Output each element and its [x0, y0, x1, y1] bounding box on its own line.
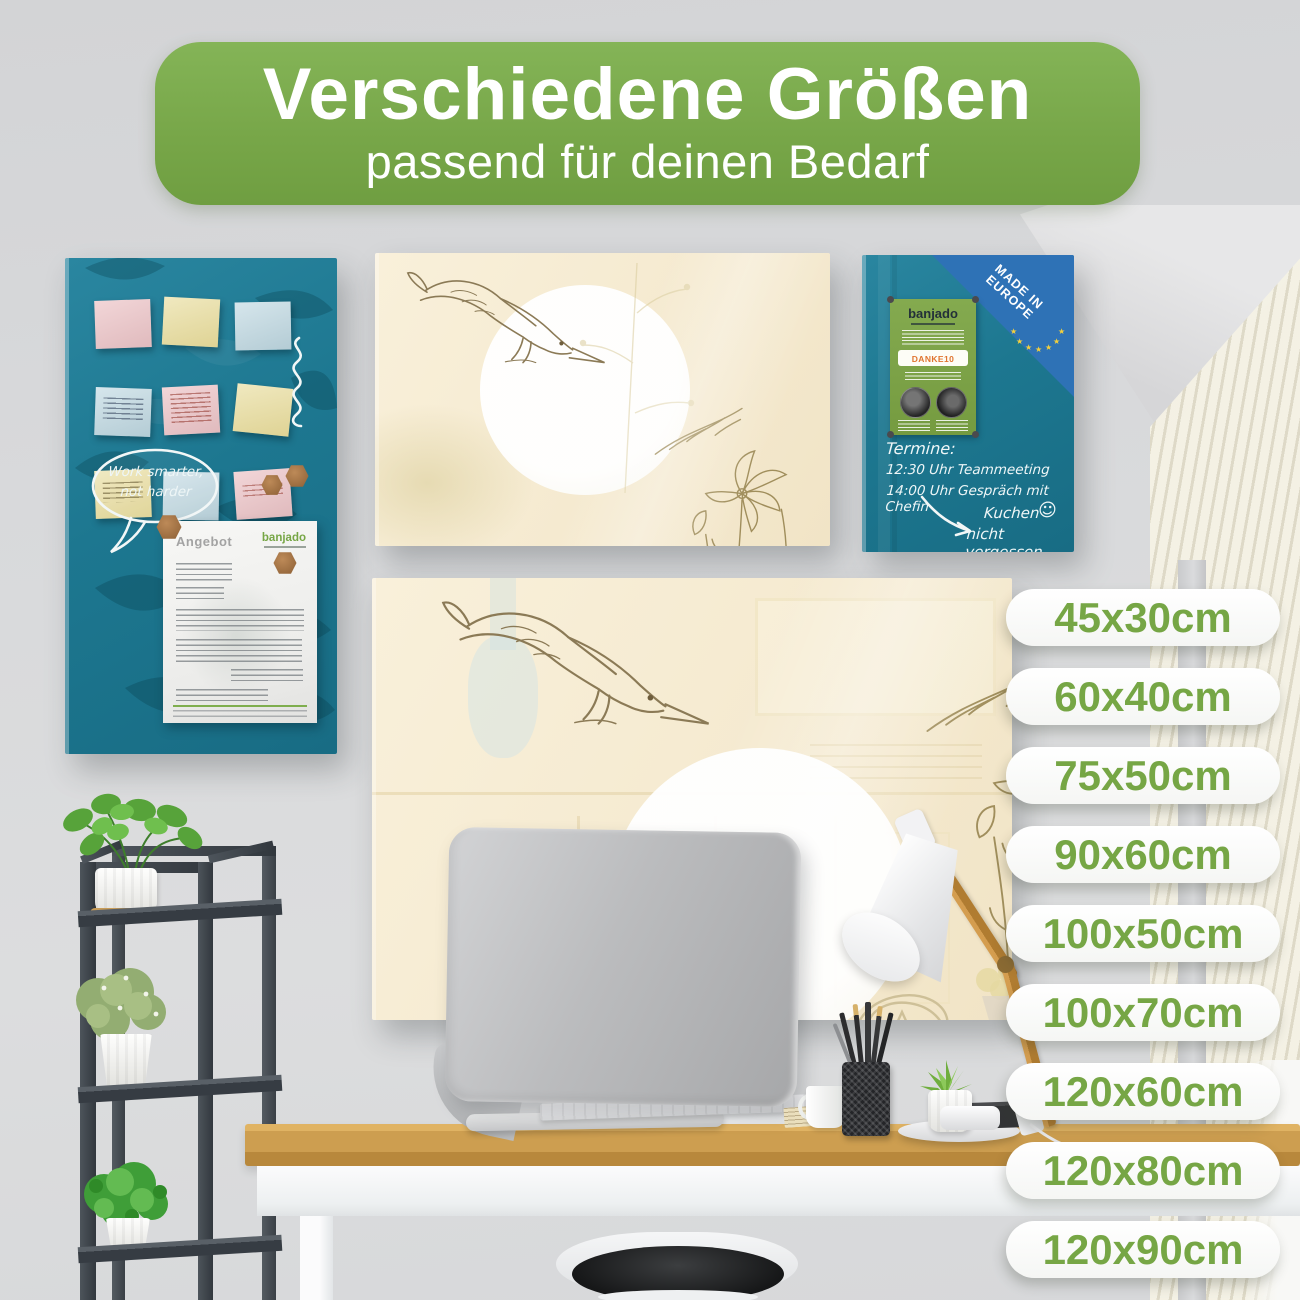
desk-leg	[300, 1216, 333, 1300]
flower-line-art	[647, 399, 830, 546]
pencil	[865, 1002, 871, 1068]
reminder-line2: nicht vergessen	[965, 525, 1074, 552]
bird-line-art	[427, 592, 727, 797]
eu-star-icon: ★	[1016, 337, 1023, 346]
lamp-base-puck	[940, 1106, 1000, 1130]
smiley-icon: ☺	[1037, 500, 1057, 521]
agenda-line1: 12:30 Uhr Teammeeting	[885, 462, 1050, 478]
glass-edge	[862, 255, 866, 552]
flyer: banjado DANKE10	[890, 299, 976, 435]
note-scribble	[170, 392, 212, 426]
flyer-coupon-badge: DANKE10	[898, 350, 968, 366]
document-text-block	[176, 689, 268, 701]
monitor-back	[445, 827, 802, 1107]
sticky-note	[235, 302, 292, 351]
glass-magnet-board-medium-cream	[375, 253, 830, 546]
flyer-magnet	[887, 296, 894, 303]
size-badge-100x50: 100x50cm	[1006, 905, 1280, 962]
sticky-note	[94, 387, 152, 437]
eu-star-icon: ★	[1035, 345, 1042, 354]
flyer-coupon-code: DANKE10	[912, 354, 954, 364]
eu-star-icon: ★	[1025, 343, 1032, 352]
dog-photo	[936, 387, 967, 418]
reminder-line1: Kuchen	[983, 504, 1040, 522]
glass-edge	[375, 253, 379, 546]
document-table-block	[176, 639, 302, 663]
size-badge-75x50: 75x50cm	[1006, 747, 1280, 804]
flyer-magnet	[972, 296, 979, 303]
shelf-front-post	[80, 862, 96, 1300]
sticky-note	[94, 299, 152, 349]
plant-pot	[98, 1034, 154, 1086]
banner-subtitle: passend für deinen Bedarf	[155, 134, 1140, 190]
agenda-heading: Termine:	[885, 439, 956, 458]
size-badge-120x60: 120x60cm	[1006, 1063, 1280, 1120]
flyer-magnet	[972, 431, 979, 438]
flyer-footer-column	[898, 420, 930, 432]
size-badge-45x30: 45x30cm	[1006, 589, 1280, 646]
glass-edge	[372, 578, 376, 1020]
note-scribble	[103, 397, 144, 420]
lamp-elbow-joint	[997, 956, 1014, 973]
flyer-footer-column	[936, 420, 968, 432]
speech-bubble-text-line2: not harder	[100, 484, 211, 500]
chalk-squiggle	[285, 334, 311, 430]
size-badge-120x90: 120x90cm	[1006, 1221, 1280, 1278]
bush-plant	[68, 960, 172, 1042]
flyer-text-block	[905, 372, 961, 382]
sticky-note	[162, 297, 220, 348]
size-badge-100x70: 100x70cm	[1006, 984, 1280, 1041]
eu-star-icon: ★	[1045, 343, 1052, 352]
banner-title: Verschiedene Größen	[155, 56, 1140, 134]
flyer-magnet	[887, 431, 894, 438]
eu-star-icon: ★	[1058, 327, 1065, 336]
bush-plant-small	[76, 1156, 176, 1228]
headline-banner: Verschiedene Größen passend für deinen B…	[155, 42, 1140, 205]
mesh-pen-cup	[842, 1062, 890, 1136]
document-totals-block	[231, 669, 303, 685]
document-title: Angebot	[176, 534, 232, 549]
sticky-note	[162, 385, 220, 436]
bird-line-art	[397, 265, 617, 417]
glass-magnet-board-small-teal: MADE IN EUROPE ★ ★ ★ ★ ★ ★ ★ banjado DAN…	[862, 255, 1074, 552]
document-text-block	[176, 609, 304, 631]
eu-star-icon: ★	[1010, 327, 1017, 336]
document-text-block	[176, 563, 232, 581]
coffee-cup	[806, 1086, 846, 1128]
speech-bubble-text-line1: Work smarter,	[100, 464, 211, 480]
size-badge-90x60: 90x60cm	[1006, 826, 1280, 883]
size-badge-60x40: 60x40cm	[1006, 668, 1280, 725]
document-footer-rule	[173, 705, 307, 707]
document-text-block	[176, 587, 224, 602]
brand-tagline-line	[264, 546, 306, 548]
product-scene: Work smarter, not harder Angebot banjado	[0, 0, 1300, 1300]
offer-document: Angebot banjado	[163, 521, 317, 723]
brand-logo: banjado	[262, 532, 306, 544]
cork-magnet	[273, 551, 297, 575]
flyer-tagline-line	[911, 323, 955, 325]
glass-edge	[65, 258, 69, 754]
circled-star-doodle	[840, 982, 970, 1020]
shelf-board	[78, 1235, 283, 1263]
glass-magnet-board-large-teal: Work smarter, not harder Angebot banjado	[65, 258, 337, 754]
flyer-text-block	[902, 330, 964, 345]
eu-star-icon: ★	[1053, 337, 1060, 346]
dog-photo	[900, 387, 931, 418]
flyer-brand-logo: banjado	[890, 306, 976, 321]
size-badge-120x80: 120x80cm	[1006, 1142, 1280, 1199]
chair-seat-front-lip	[598, 1290, 758, 1300]
document-footer-block	[173, 710, 307, 719]
